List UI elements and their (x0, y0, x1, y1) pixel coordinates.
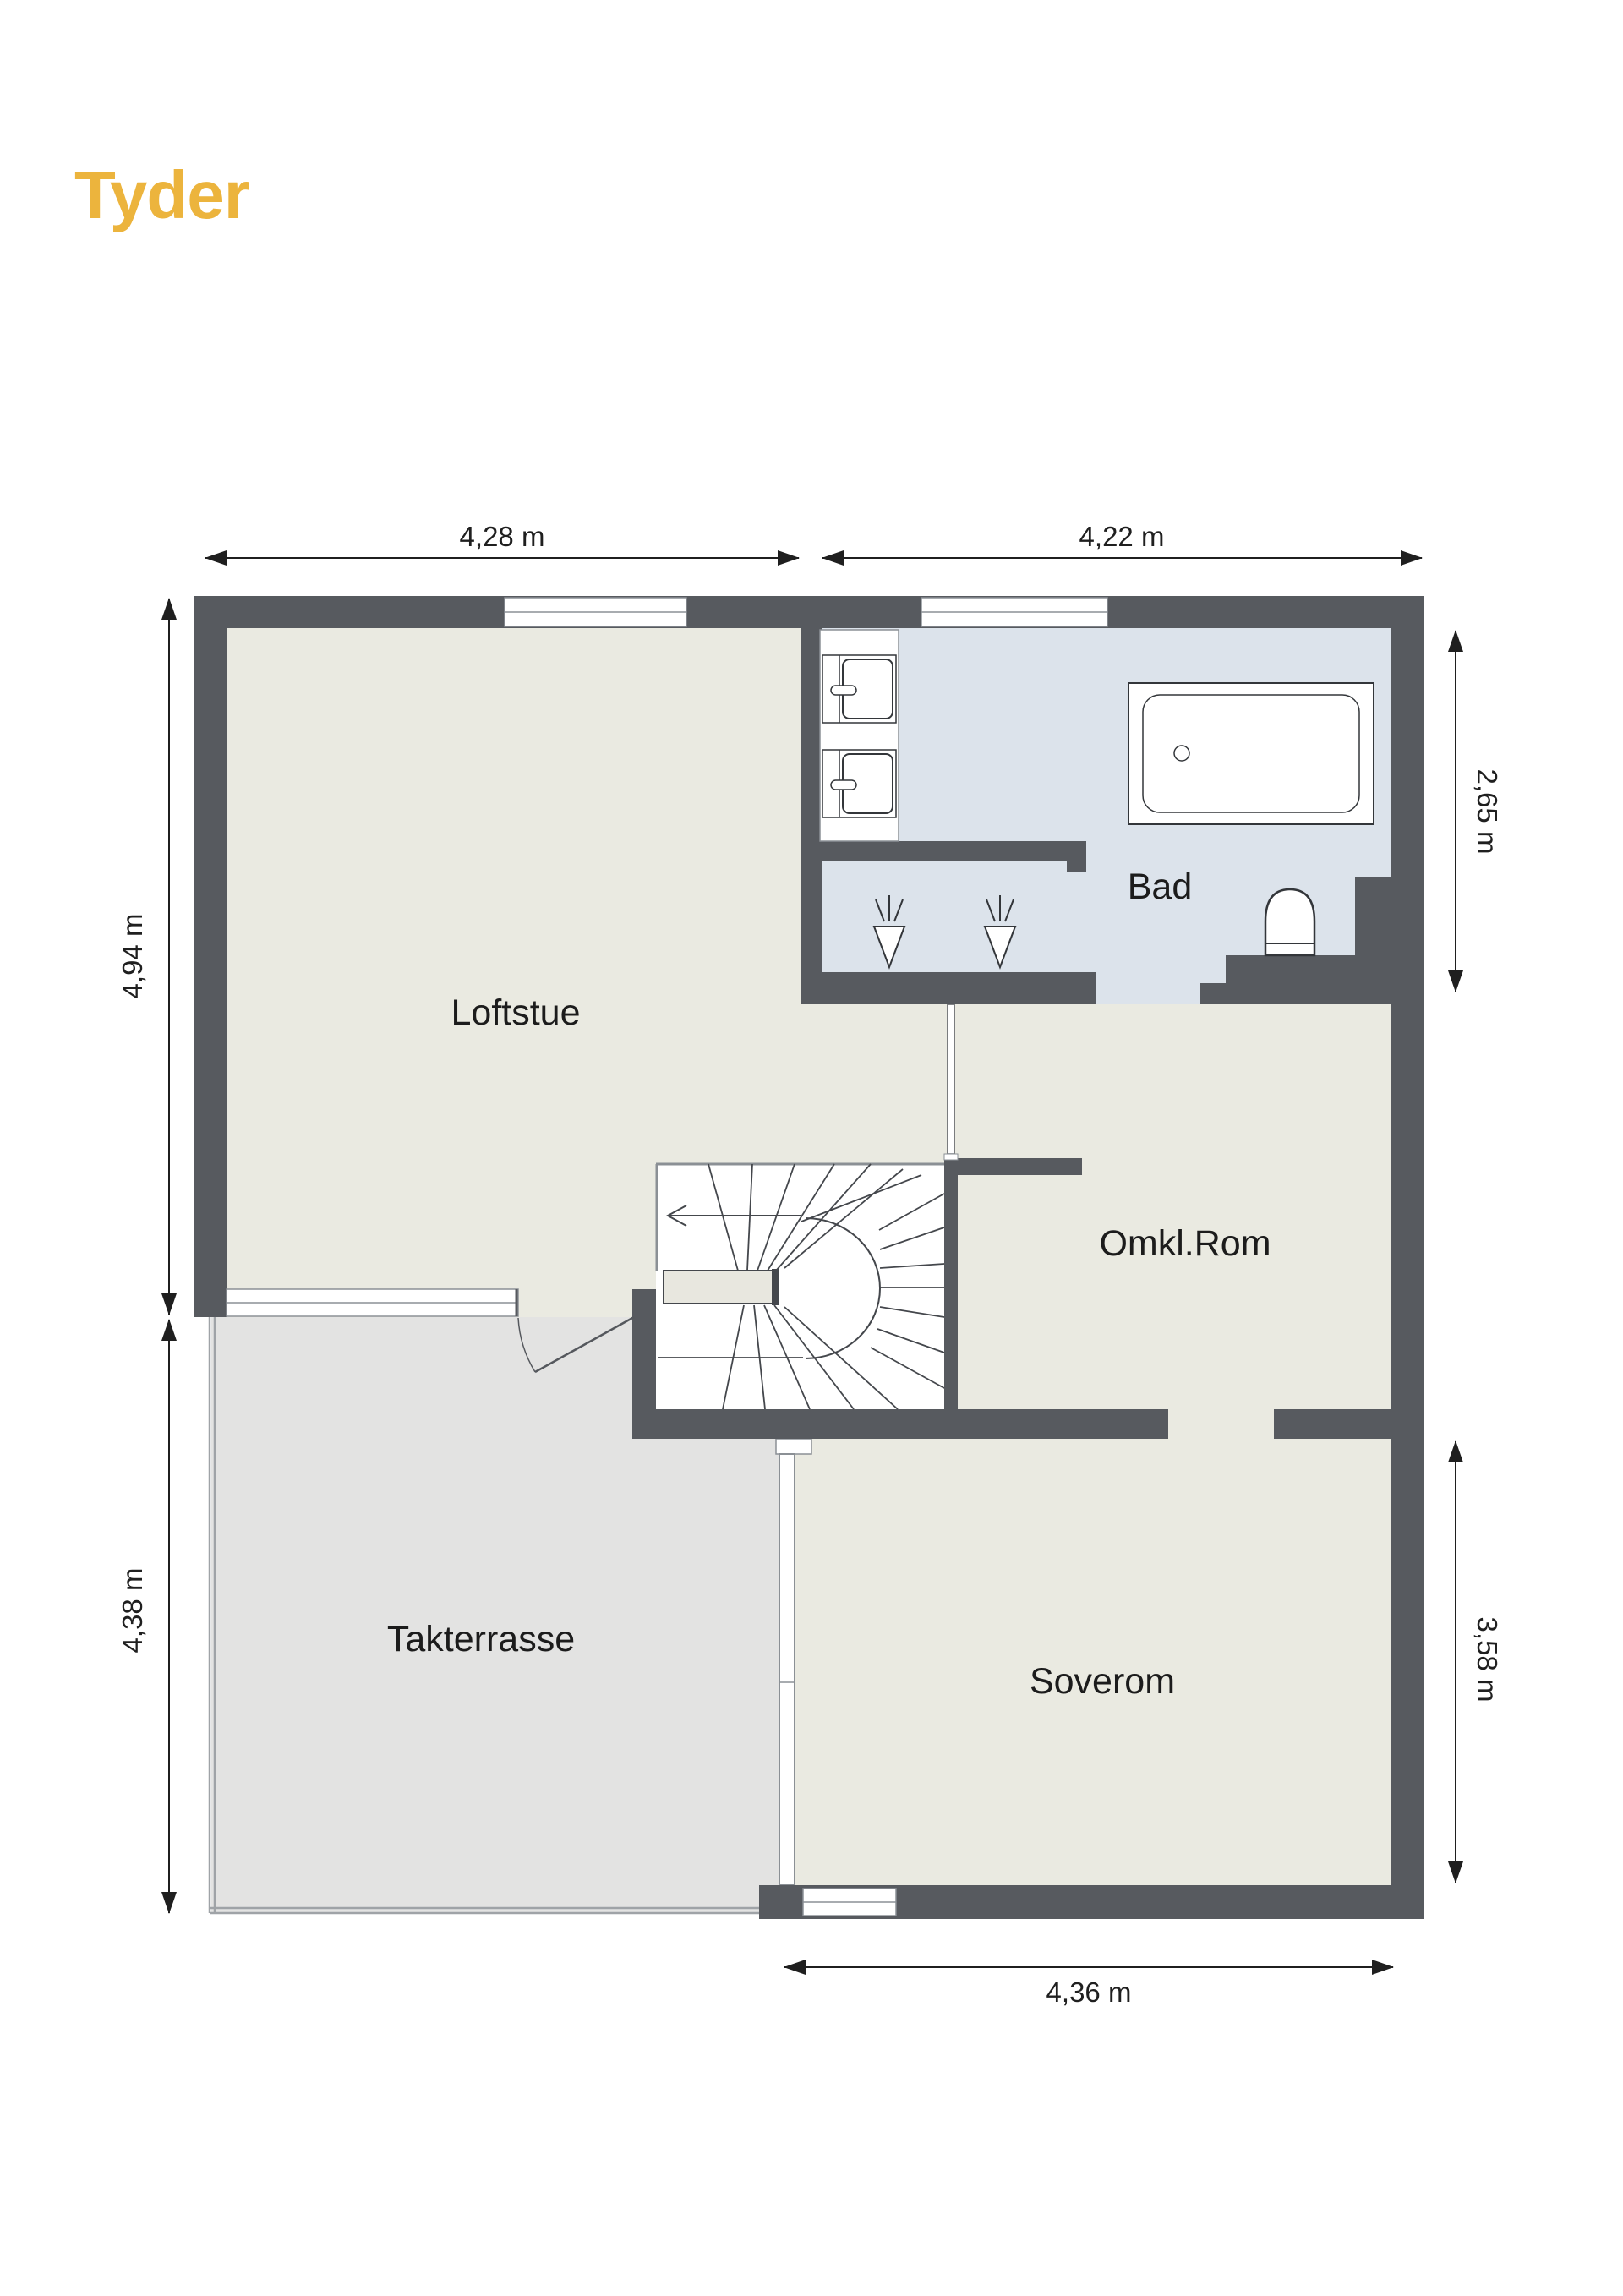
dim-label-right-lower: 3,58 m (1472, 1617, 1503, 1703)
wall-toilet-nook (1355, 877, 1391, 1004)
stair-entry-landing (664, 1271, 773, 1304)
wall-soverom-top-west (632, 1409, 1168, 1439)
toilet-icon (1265, 889, 1314, 955)
dim-label-top-left: 4,28 m (460, 521, 545, 552)
bathtub-icon (1128, 683, 1374, 824)
staircase (656, 1164, 944, 1409)
wall-soverom-top-east (1274, 1409, 1391, 1439)
wall-stair-left (632, 1289, 656, 1439)
sink-icon (822, 655, 896, 723)
room-label-bad: Bad (1128, 866, 1193, 907)
wall-left (194, 596, 227, 1317)
sink-cabinet (820, 630, 899, 841)
window-loftstue-terrace-sliding (227, 1289, 518, 1316)
dim-label-bottom: 4,36 m (1046, 1976, 1132, 2008)
window-soverom-south (803, 1889, 896, 1916)
door-leaf (948, 1004, 954, 1154)
floor-plan-canvas: Tyder (0, 0, 1623, 2296)
dim-label-right-upper: 2,65 m (1472, 769, 1503, 855)
wall-bath-south-step (1200, 983, 1226, 1004)
dim-label-top-right: 4,22 m (1079, 521, 1165, 552)
wall-top (194, 596, 1424, 628)
wall-right (1391, 596, 1424, 1919)
room-label-soverom: Soverom (1030, 1661, 1175, 1702)
window-loftstue-north (505, 598, 686, 626)
sink-icon (822, 750, 896, 817)
stair-landing-cap (772, 1269, 779, 1305)
room-label-loftstue: Loftstue (451, 992, 581, 1033)
wall-toilet-step (1226, 955, 1355, 1004)
dim-label-left-lower: 4,38 m (117, 1568, 148, 1654)
wall-under-sinks (801, 841, 1086, 861)
wall-stair-right (944, 1158, 958, 1409)
tyder-logo: Tyder (74, 157, 249, 232)
wall-loftstue-bad-divider (801, 628, 822, 1004)
door-jamb (944, 1154, 958, 1160)
wall-under-sinks-stub (1067, 861, 1086, 872)
wall-terrace-corner-post (759, 1885, 783, 1919)
floor-plan-page: Tyder (0, 0, 1623, 2296)
dim-label-left-upper: 4,94 m (117, 914, 148, 999)
wall-omkl-corridor (944, 1158, 1082, 1175)
room-label-takterrasse: Takterrasse (387, 1619, 575, 1659)
room-label-omkl-rom: Omkl.Rom (1099, 1223, 1271, 1264)
wall-bath-south-left (801, 972, 1096, 1004)
window-bad-north (921, 598, 1107, 626)
